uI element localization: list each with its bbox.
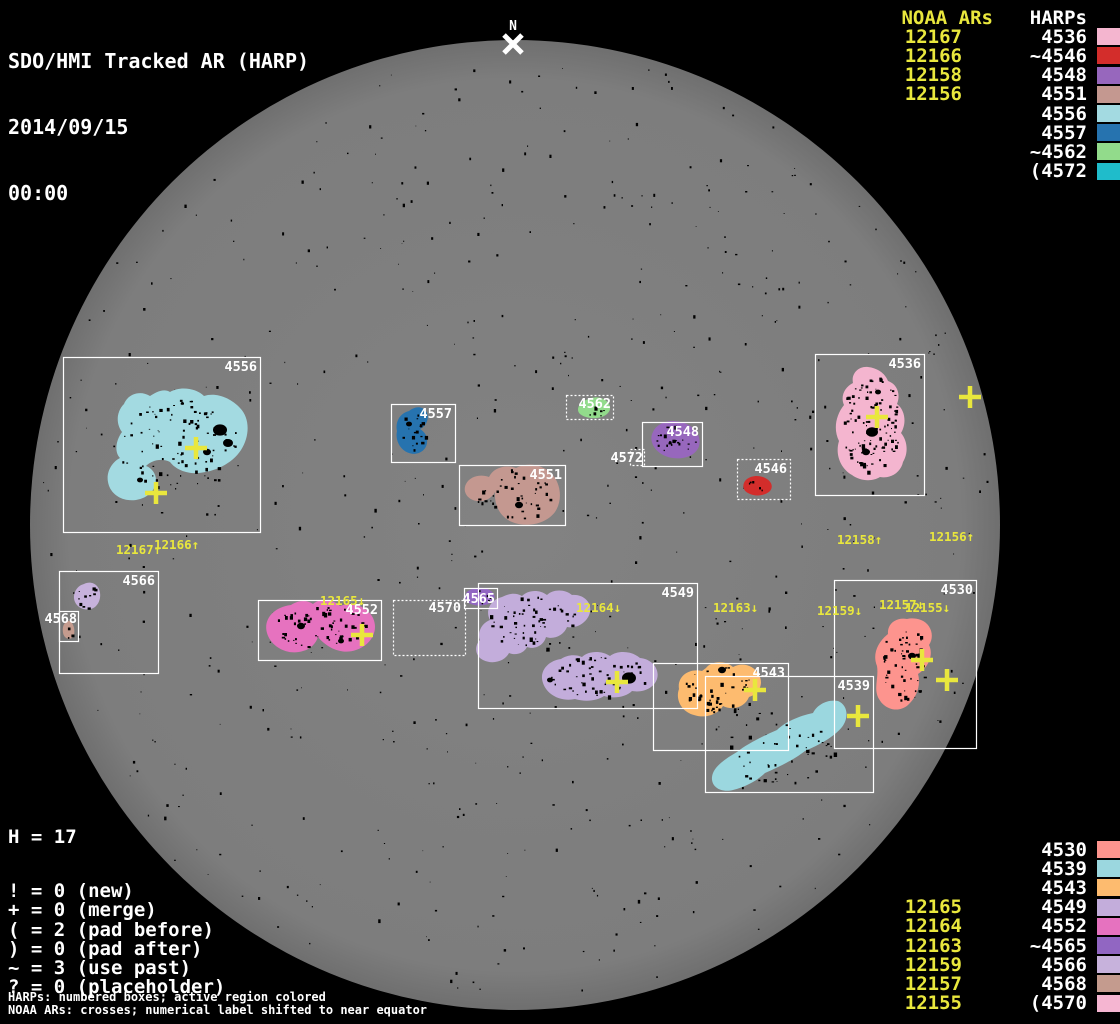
- harp-box-label-4572: 4572: [610, 450, 643, 466]
- noaa-number: 12156: [872, 83, 962, 105]
- harp-box-label-4530: 4530: [940, 582, 973, 598]
- harp-color-swatch: [1097, 105, 1120, 122]
- harp-color-swatch: [1097, 28, 1120, 45]
- harp-color-swatch: [1097, 163, 1120, 180]
- harp-box-label-4568: 4568: [44, 611, 77, 627]
- legend-bottom-row-4530: 4530: [872, 840, 1120, 859]
- harp-box-label-4556: 4556: [224, 359, 257, 375]
- harp-box-label-4549: 4549: [661, 585, 694, 601]
- noaa-ar-label: 12158↑: [837, 532, 882, 547]
- harp-box-label-4570: 4570: [428, 600, 461, 616]
- legend-top-row-4548: 121584548: [872, 66, 1120, 85]
- harp-box-label-4548: 4548: [666, 424, 699, 440]
- plot-time: 00:00: [8, 182, 309, 204]
- harp-box-label-4543: 4543: [752, 665, 785, 681]
- legend-bottom-row-4549: 121654549: [872, 898, 1120, 917]
- harp-color-swatch: [1097, 86, 1120, 103]
- noaa-ar-label: 12164↓: [576, 600, 621, 615]
- noaa-ar-label: 12166↑: [154, 537, 199, 552]
- stats-block: H = 17 ! = 0 (new) + = 0 (merge) ( = 2 (…: [8, 826, 225, 998]
- harp-color-swatch: [1097, 918, 1120, 935]
- footnote-noaa: NOAA ARs: crosses; numerical label shift…: [8, 1004, 427, 1017]
- harp-color-swatch: [1097, 937, 1120, 954]
- harp-box-label-4539: 4539: [837, 678, 870, 694]
- legend-top-row-4536: 121674536: [872, 27, 1120, 46]
- harp-color-swatch: [1097, 879, 1120, 896]
- noaa-ar-label: 12155↓: [905, 600, 950, 615]
- harp-tracker-plot: 4556455745514562454845724546453645664568…: [0, 0, 1120, 1024]
- harp-box-label-4562: 4562: [578, 396, 611, 412]
- harp-color-swatch: [1097, 47, 1120, 64]
- legend-top-row-4546: 12166~4546: [872, 46, 1120, 65]
- harp-number: (4572: [962, 160, 1087, 182]
- legend-bottom-row-4568: 121574568: [872, 974, 1120, 993]
- noaa-ar-label: 12165↓: [320, 593, 365, 608]
- legend-bottom-row-4565: 12163~4565: [872, 936, 1120, 955]
- legend-top-row-4557: 4557: [872, 123, 1120, 142]
- harp-box-label-4546: 4546: [754, 461, 787, 477]
- harp-box-label-4536: 4536: [888, 356, 921, 372]
- harp-count: H = 17: [8, 826, 225, 848]
- legend-top-row-4572: (4572: [872, 162, 1120, 181]
- legend-bottom-row-4552: 121644552: [872, 917, 1120, 936]
- legend-bottom: 45304539454312165454912164455212163~4565…: [872, 840, 1120, 1013]
- stat-pad-before: ( = 2 (pad before): [8, 921, 225, 940]
- legend-bottom-row-4570: 12155(4570: [872, 994, 1120, 1013]
- harp-box-label-4566: 4566: [122, 573, 155, 589]
- legend-top-row-4556: 4556: [872, 104, 1120, 123]
- legend-bottom-row-4539: 4539: [872, 859, 1120, 878]
- legend-top-header: NOAA ARs HARPs: [872, 8, 1120, 27]
- harp-number: (4570: [962, 992, 1087, 1014]
- harp-color-swatch: [1097, 995, 1120, 1012]
- noaa-ar-label: 12156↑: [929, 529, 974, 544]
- footnote-harps: HARPs: numbered boxes; active region col…: [8, 991, 427, 1004]
- legend-top-row-4562: ~4562: [872, 142, 1120, 161]
- harp-color-swatch: [1097, 860, 1120, 877]
- stat-merge: + = 0 (merge): [8, 901, 225, 920]
- harp-box-label-4557: 4557: [419, 406, 452, 422]
- noaa-ar-label: 12163↓: [713, 600, 758, 615]
- harp-color-swatch: [1097, 899, 1120, 916]
- legend-bottom-row-4566: 121594566: [872, 955, 1120, 974]
- harp-color-swatch: [1097, 956, 1120, 973]
- legend-bottom-row-4543: 4543: [872, 878, 1120, 897]
- harp-color-swatch: [1097, 143, 1120, 160]
- harp-color-swatch: [1097, 67, 1120, 84]
- legend-top-row-4551: 121564551: [872, 85, 1120, 104]
- harp-box-label-4551: 4551: [529, 467, 562, 483]
- plot-header: SDO/HMI Tracked AR (HARP) 2014/09/15 00:…: [8, 6, 309, 248]
- north-label: N: [509, 19, 517, 34]
- plot-date: 2014/09/15: [8, 116, 309, 138]
- plot-title: SDO/HMI Tracked AR (HARP): [8, 50, 309, 72]
- footnotes: HARPs: numbered boxes; active region col…: [8, 991, 427, 1016]
- legend-top: NOAA ARs HARPs 12167453612166~4546121584…: [872, 8, 1120, 181]
- noaa-ar-label: 12159↓: [817, 603, 862, 618]
- harp-color-swatch: [1097, 124, 1120, 141]
- noaa-number: 12155: [872, 992, 962, 1014]
- harp-color-swatch: [1097, 841, 1120, 858]
- harp-color-swatch: [1097, 975, 1120, 992]
